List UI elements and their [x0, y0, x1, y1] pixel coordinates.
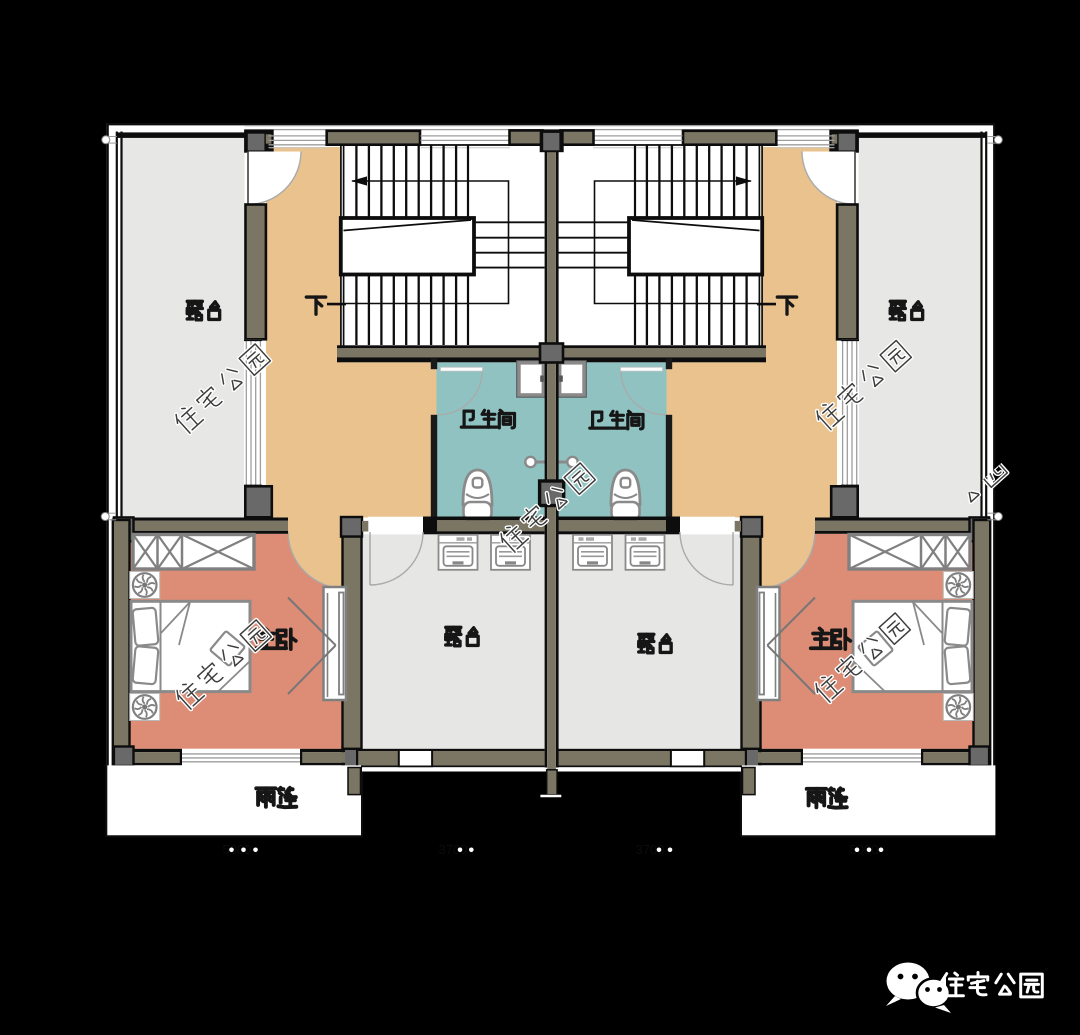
svg-text:5000: 5000: [850, 842, 879, 857]
svg-text:5000: 5000: [223, 842, 252, 857]
svg-text:3700: 3700: [439, 842, 468, 857]
